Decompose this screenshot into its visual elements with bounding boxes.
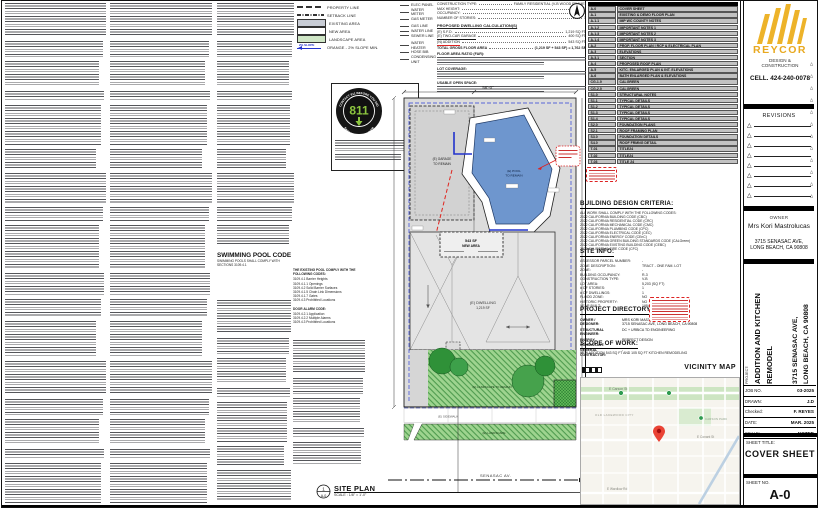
revision-triangle-icon: △ [747,133,752,139]
sheet-number-cell: S2.1 [588,128,616,133]
sheet-number-cell: A-1.2 [588,25,616,30]
sheet-number-cell: A-1.4 [588,37,616,42]
notes-text-block [5,61,99,87]
sheet-number-cell: A-3 [588,49,616,54]
margin-triangle-icon: △ [810,122,813,126]
sheet-number-cell: A-2 [588,43,616,48]
sheet-number-cell: A-4 [588,61,616,66]
project-address-line2: LONG BEACH, CA 90808 [803,268,810,384]
project-name-line1: ADDITION AND KITCHEN [753,268,762,384]
sheet-index-row: A-1.3IMPORTANT NOTES 2 [588,31,738,36]
margin-triangle-icon: △ [810,194,813,198]
sheet-number-cell: S3.0 [588,134,616,139]
sheet-index-row: S1.1TYPICAL DETAILS [588,98,738,103]
sheet-title-cell: TYPICAL DETAILS [617,110,739,115]
notes-text-block [5,321,96,357]
sheet-index-row: S1.3TYPICAL DETAILS [588,110,738,115]
sheet-title-cell: TITLE24 [617,153,739,158]
park-poi-icon [619,391,624,396]
pool-code-item: 3109.4.3 Prohibited Locations [293,298,367,302]
scope-of-work-text: NEW ADDITION 543 SQ FT AND 105 SQ FT KIT… [580,351,736,355]
sheet-index-row: S2.0FOUNDATION PLANS [588,122,738,127]
revision-triangle-icon: △ [747,163,752,169]
titleblock: REYCOR DESIGN & CONSTRUCTION CELL. 424-2… [744,2,816,82]
garage-label: (E) GARAGE [433,157,452,161]
tree [535,356,555,376]
north-arrow-icon [568,2,586,20]
notes-col-3 [217,3,294,245]
notes-text-block [5,91,104,101]
map-label-old-lakewood: OLD LAKEWOOD CITY [595,413,634,417]
vicinity-map: E Carson St OLD LAKEWOOD CITY CARSON PAR… [580,377,740,505]
utility-symbol [400,26,409,27]
sheet-number-cell: T-01 [588,146,616,151]
leader-dots [489,48,532,49]
sheet-title-cell: BATH ENLARGED PLAN & ELEVATIONS [617,73,739,78]
divider-bar [743,474,817,478]
detail-marker: 1 A-0 [316,484,331,499]
project-directory-title: PROJECT DIRECTORY: [580,306,652,315]
sheet-index-row: S4.0ROOF FRMNG DETAIL [588,140,738,145]
paragraph-greek [437,62,544,65]
map-label-carson: E Carson St [609,387,627,391]
sheet-title-cell: IMPORTANT NOTES 1 [617,25,739,30]
notes-text-block [110,3,212,37]
sheet-title: COVER SHEET [743,449,817,459]
notes-text-block [217,470,291,500]
legend-label: PROPERTY LINE [327,5,359,10]
revision-triangle-icon: △ [747,183,752,189]
dwelling-sf: 1,219 SF [476,306,490,310]
field-value: J.D [807,399,814,404]
sheet-title-cell: IMP WC COUNTY NOTES [617,18,739,23]
sheet-number-cell: A-1 [588,12,616,17]
sheet-number-cell: T-03 [588,159,616,164]
sheet-index-row: A-0COVER SHEET [588,6,738,11]
margin-triangle-icon: △ [810,110,813,114]
sheet-index: A-0COVER SHEETA-1EXISTING & DEMO FLOOR P… [588,2,738,165]
margin-triangle-icon: △ [810,182,813,186]
sheet-number-cell: A-1.3 [588,31,616,36]
revision-line [754,156,811,157]
red-stamp-small [586,167,617,182]
sheet-title-cell: FOUNDATION PLANS [617,122,739,127]
notes-text-block [217,402,287,442]
map-label-wardlow: E Wardlow Rd [607,487,627,491]
sheet-index-row: CG-2.0CALGREEN [588,86,738,91]
revision-triangle-icon: △ [747,153,752,159]
utility-symbol [400,12,409,13]
sheet-title-cell: CALGREEN [617,79,739,84]
utility-symbol [400,35,409,36]
sheet-title-cell: COVER SHEET [617,6,739,11]
notes-text-block [110,273,210,295]
park-poi-icon [667,391,672,396]
margin-triangle-icon: △ [810,86,813,90]
vicinity-map-title: VICINITY MAP [684,364,736,371]
revision-row: △ [744,151,814,161]
cover-sheet: SWIMMING POOL CODE SWIMMING POOLS SHALL … [0,0,818,510]
notes-text-block [293,398,360,424]
revision-row: △ [744,121,814,131]
door-alarm-items: 3109.4.2.1 Application3109.4.2.2 Multipl… [293,312,367,325]
margin-triangle-icon: △ [810,62,813,66]
sheet-number-cell: S4.0 [588,140,616,145]
pool-label-2: TO REMAIN [505,174,522,178]
notes-text-block [110,207,209,221]
sheet-title-cell: FOUNDATION DETAILS [617,134,739,139]
vicinity-map-bar: VICINITY MAP [580,363,738,376]
leader-dots [479,4,512,5]
dim-top-label: 56'-0" [482,85,494,90]
notes-text-block [5,399,103,415]
calc-value: (1,219 SF + 543 SF) = 1,762 SF [535,46,586,51]
leader-dots [478,18,582,19]
sheet-title-cell: ELEVATIONS [617,49,739,54]
sheet-index-row: A-2PROP. FLOOR PLAN | RCP & ELECTRICAL P… [588,43,738,48]
notes-text-block [110,463,207,503]
marker-sheet: A-0 [321,494,327,498]
sheet-title-cell: TYPICAL DETAILS [617,116,739,121]
legend-row: EXISTING AREA [297,19,397,27]
margin-triangle-icon: △ [810,170,813,174]
sheet-title-cell: CALGREEN [617,86,739,91]
sheet-index-row: S1.0STRUCTURAL NOTES [588,92,738,97]
paragraph-lead: FLOOR AREA RATIO (FAR): [437,52,484,56]
notes-text-block [217,149,286,169]
revision-line [754,126,811,127]
sheet-index-row: A-3ELEVATIONS [588,49,738,54]
sheet-number-cell: T-02 [588,153,616,158]
map-label-conant: E Conant St [697,435,714,439]
legend-label: NEW AREA [329,29,350,34]
legend-label: SETBACK LINE [327,13,356,18]
map-label-carson-park: CARSON PARK [705,417,727,421]
paragraph-greek [437,76,544,79]
slope-arrow-symbol: 2% SLOPE [297,44,324,51]
revision-line [754,136,811,137]
notes-text-block [110,173,212,203]
notes-text-block [110,399,209,415]
owner-address: 3715 SENASAC AVE, LONG BEACH, CA 90808 [744,239,814,251]
notes-text-block [293,428,364,438]
notes-text-block [110,449,210,459]
pool-label: (E) POOL [507,169,521,173]
field-label: DRAWN: [745,399,762,404]
utility-item: WATER HEATER [400,41,436,50]
landscape-square [554,380,576,407]
legend-label: ORANGE - 2% SLOPE MIN. [327,45,379,50]
garage-label-2: TO REMAIN [433,162,451,166]
tree [450,358,468,376]
calc-paragraph: LOT COVERAGE: [437,67,586,79]
revision-line [754,166,811,167]
sheet-index-row: S2.1ROOF FRAMING PLAN [588,128,738,133]
title-underline [334,492,582,494]
sheet-no-label: SHEET NO. [746,480,770,485]
sheet-title-cell: TYPICAL DETAILS [617,98,739,103]
brand-subtitle: DESIGN & CONSTRUCTION [744,58,816,68]
utility-symbol [400,45,409,46]
calc-paragraph: FLOOR AREA RATIO (FAR): [437,52,586,64]
field-value: MAR. 2025 [791,420,814,425]
titleblock-field-row: Checked:F. REYES [743,407,816,418]
pool-code-list-heading: THE EXISTING POOL COMPLY WITH THE FOLLOW… [293,268,367,276]
notes-text-block [110,361,212,395]
sheet-title-cell: PROP. FLOOR PLAN | RCP & ELECTRICAL PLAN [617,43,739,48]
site-plan-scale: SCALE : 1/8" = 1'-0" [334,493,366,497]
utilities-legend: ELEC PANELWATER METERGAS METERGAS LINEWA… [400,3,436,64]
revision-triangle-icon: △ [747,143,752,149]
fields-table: JOB NO.03-2025DRAWN:J.DChecked:F. REYESD… [743,385,816,439]
sheet-index-row: S3.0FOUNDATION DETAILS [588,134,738,139]
plan-legend: PROPERTY LINESETBACK LINEEXISTING AREANE… [297,3,397,51]
notes-text-block [5,299,101,317]
sheet-title-cell: SECTION [617,55,739,60]
margin-triangle-icon: △ [810,146,813,150]
design-criteria-title: BUILDING DESIGN CRITERIA: [580,200,673,209]
revision-row: △ [744,131,814,141]
field-label: JOB NO. [745,388,762,393]
utility-item: CONDENSING UNIT [400,55,436,64]
notes-text-block [110,41,209,57]
notes-col-2 [110,3,212,503]
sheet-index-row: A-1.1IMP WC COUNTY NOTES [588,18,738,23]
sheet-number-cell: S1.4 [588,116,616,121]
revision-line [754,176,811,177]
project-address-line1: 3715 SENASAC AVE, [792,268,799,384]
sheet-number-cell: A-3.1 [588,55,616,60]
field-value: F. REYES [794,409,814,414]
sheet-title-cell: PROPOSED ROOF PLAN [617,61,739,66]
directory-role: OWNER / DESIGNER: [580,318,622,327]
pool-code-subtitle: SWIMMING POOLS SHALL COMPLY WITH SECTION… [217,260,293,268]
notes-text-block [5,207,103,221]
line-dashdot-symbol [297,14,324,15]
sheet-index-row: T-03TITLE 24 [588,159,738,164]
utility-symbol [400,19,409,20]
sheet-index-row: A-4PROPOSED ROOF PLAN [588,61,738,66]
sheet-index-header [588,2,738,6]
street-label: SENASAC AV. [480,473,511,478]
revisions-title: REVISIONS [744,113,814,119]
revision-line [754,196,811,197]
calc-label: TOTAL GROSS FLOOR AREA [437,46,487,51]
cell-phone: CELL. 424-240-0078 [744,75,816,82]
notes-text-block [110,299,207,317]
sheet-index-rows: A-0COVER SHEETA-1EXISTING & DEMO FLOOR P… [588,6,738,164]
notes-text-block [5,449,104,459]
legend-label: EXISTING AREA [329,21,360,26]
sheet-title-cell: EXISTING & DEMO FLOOR PLAN [617,12,739,17]
pd-label: NUMBER OF STORIES: [437,16,476,21]
pool-code-body [217,300,291,502]
sheet-number-cell: A-0 [588,6,616,11]
sheet-index-row: S1.2TYPICAL DETAILS [588,104,738,109]
utility-label: WATER HEATER [411,41,436,50]
sheet-title-cell: IMPORTANT NOTES 3 [617,37,739,42]
notes-text-block [217,105,290,145]
revision-triangle-icon: △ [747,123,752,129]
sheet-index-row: S1.4TYPICAL DETAILS [588,116,738,121]
sheet-title-cell: ROOF FRAMING PLAN [617,128,739,133]
notes-text-block [5,361,106,395]
site-info-value: 5,203 (SQ FT) [642,282,664,287]
notes-text-block [5,419,99,445]
leader-dots [455,32,564,33]
margin-triangle-icon: △ [810,98,813,102]
notes-text-block [5,41,103,57]
utility-symbol [400,5,409,6]
sheet-index-row: A-3.1SECTION [588,55,738,60]
notes-text-block [217,207,292,221]
swatch-existing-symbol [297,19,326,27]
notes-text-block [5,173,106,203]
sheet-number-cell: CG-2.0 [588,86,616,91]
legend-row: SETBACK LINE [297,11,397,19]
call-811-badge: CONTACT 811 BEFORE YOU DIG SAFE DIGGING … [334,86,384,136]
pool-code-section: SWIMMING POOL CODE SWIMMING POOLS SHALL … [217,252,293,268]
field-label: Checked: [745,409,763,414]
divider-bar [744,259,814,264]
notes-text-block [217,300,291,334]
titleblock-field-row: JOB NO.03-2025 [743,386,816,397]
sidewalk [404,409,576,423]
sheet-number-cell: S1.0 [588,92,616,97]
calc-value: 543 SQ FT [568,40,586,45]
utility-label: WATER METER [411,8,436,17]
leader-dots [462,42,566,43]
site-info-title: SITE INFO: [580,248,614,257]
revisions-list: △△△△△△△△ [744,121,814,201]
sheet-number-cell: A-5 [588,67,616,72]
project-label: PROJECT: [745,330,749,384]
utility-symbol [400,31,409,32]
site-info-value: TRACT - ONE FAM. LOT [642,264,681,269]
notes-text-block [217,388,290,398]
revision-line [754,186,811,187]
leader-dots [478,36,566,37]
notes-text-block [217,41,292,57]
pool-code-body-2 [293,340,365,465]
notes-text-block [217,91,292,101]
revision-triangle-icon: △ [747,173,752,179]
divider-bar [744,104,814,109]
leader-dots [462,9,575,10]
divider-titleblock-outer [740,1,741,506]
project-name-line2: REMODEL [765,268,774,384]
reycor-logo-icon [753,4,807,44]
revision-cloud [556,146,580,166]
scale-bar-icon [582,367,602,373]
notes-text-block [110,225,205,269]
notes-text-block [5,273,104,295]
new-area-sf: 543 SF [465,239,478,243]
legend-label: LANDSCAPE AREA [329,37,365,42]
pool-code-title: SWIMMING POOL CODE [217,252,293,259]
red-stamp-directory [649,297,690,322]
revision-row: △ [744,171,814,181]
sheet-index-row: A-1.4IMPORTANT NOTES 3 [588,37,738,42]
slope-arrow-icon [297,48,321,49]
calc-heading: PROPOSED DWELLING CALCULATION(S) [437,24,586,29]
sheet-title-cell: TITLE24 [617,146,739,151]
paragraph-lead: LOT COVERAGE: [437,67,467,71]
sheet-title-cell: ROOF FRMNG DETAIL [617,140,739,145]
revision-row: △ [744,181,814,191]
sheet-index-row: A-5KITC. ENLARGED PLAN & INT. ELEVATIONS [588,67,738,72]
notes-text-block [5,105,101,145]
sheet-number-cell: S1.2 [588,104,616,109]
notes-text-block [217,338,289,354]
sheet-number-cell: S1.1 [588,98,616,103]
scope-of-work-title: SCOPE OF WORK: [580,340,638,349]
sheet-number-cell: A-6 [588,73,616,78]
margin-triangle-icon: △ [810,134,813,138]
margin-triangle-icon: △ [810,74,813,78]
parkway-label: (E) LANDSCAPE [482,431,505,435]
notes-text-block [217,61,289,87]
swatch-new-symbol [297,27,326,35]
notes-text-block [110,61,205,87]
notes-text-block [110,105,207,145]
sidewalk-label: (E) SIDEWALK [438,415,458,419]
titleblock-field-row: DATE:MAR. 2025 [743,418,816,429]
revision-row: △ [744,161,814,171]
notes-text-block [5,463,101,503]
notes-col-1 [5,3,106,503]
pool-code-list: THE EXISTING POOL COMPLY WITH THE FOLLOW… [293,268,367,324]
sheet-number-cell: S2.0 [588,122,616,127]
revision-row: △ [744,141,814,151]
utility-symbol [400,52,409,53]
calc-row: TOTAL GROSS FLOOR AREA(1,219 SF + 543 SF… [437,46,586,51]
notes-text-block [217,225,289,245]
margin-triangle-icon: △ [810,158,813,162]
notes-text-block [110,419,205,445]
park-poi-icon [699,416,703,420]
utility-symbol [400,59,409,60]
notes-text-block [110,91,210,101]
notes-text-block [217,446,284,466]
revision-line [754,146,811,147]
pool-code-items: 3109.4.1 Barrier Heights3109.4.1.1 Openi… [293,277,367,302]
legend-row: 2% SLOPEORANGE - 2% SLOPE MIN. [297,43,397,51]
notes-text-block [293,340,365,374]
legend-row: PROPERTY LINE [297,3,397,11]
sheet-index-row: CG-1.0CALGREEN [588,79,738,84]
field-label: DATE: [745,420,757,425]
notes-text-block [217,173,294,203]
notes-text-block [5,3,106,37]
sheet-index-row: T-01TITLE24 [588,146,738,151]
owner-title: OWNER [744,215,814,220]
notes-text-block [5,149,96,169]
line-dash-symbol [297,6,324,7]
dwelling-label: (E) DWELLING [470,301,496,305]
utility-label: SEWER LINE [411,34,434,39]
new-area-label: NEW AREA [462,244,480,248]
sheet-index-row: A-6BATH ENLARGED PLAN & ELEVATIONS [588,73,738,78]
project-data-line: NUMBER OF STORIES:1 [437,16,586,21]
notes-text-block [110,321,202,357]
utility-item: WATER METER [400,8,436,17]
notes-text-block [217,358,286,384]
sheet-title-cell: KITC. ENLARGED PLAN & INT. ELEVATIONS [617,67,739,72]
sheet-number-cell: A-1.1 [588,18,616,23]
divider-bar [743,433,817,437]
sheet-number: A-0 [743,487,817,502]
